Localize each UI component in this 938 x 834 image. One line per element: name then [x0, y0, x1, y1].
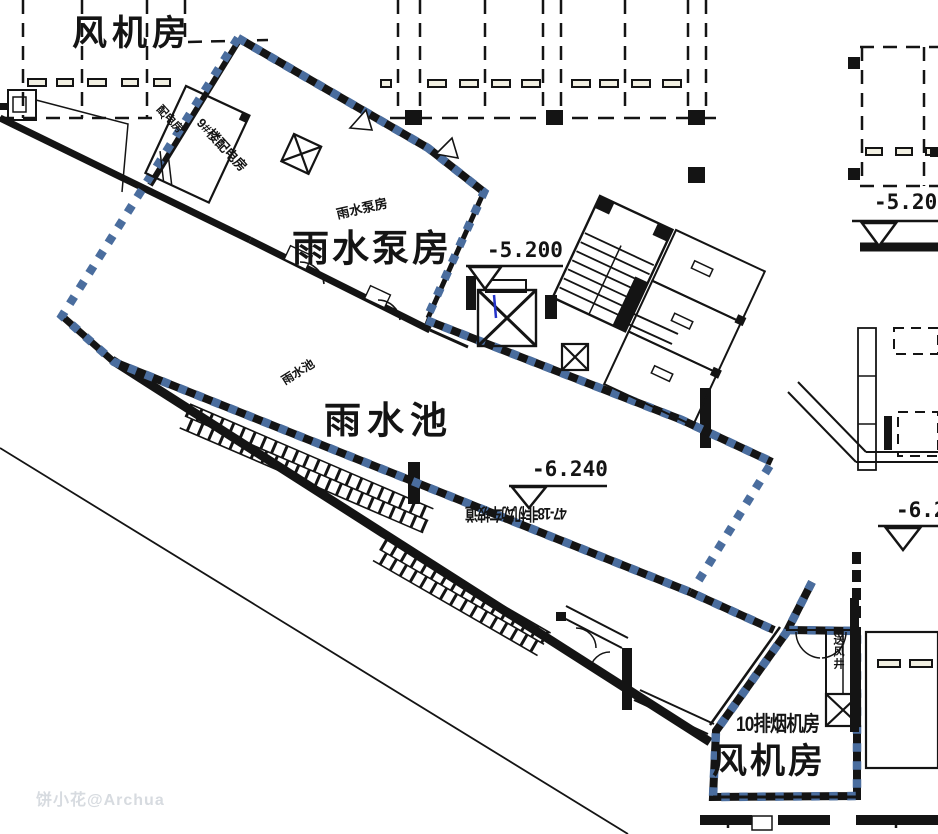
floor-plan-canvas: 风机房 雨水泵房 雨水泵房 雨水池 雨水池 配电房 9#楼配电房 47-18非机…: [0, 0, 938, 834]
elevation-marker-pump: [466, 266, 563, 289]
label-bicycle-ramp: 47-18非机动车坡道: [466, 505, 567, 522]
wheel-stops: [28, 79, 170, 86]
label-fan-room-bottom: 风机房: [712, 744, 826, 779]
staircase-symbol: [553, 196, 673, 331]
elevation-text-pool: -6.240: [532, 459, 608, 480]
watermark: 饼小花@Archua: [36, 786, 165, 810]
elevator-symbol: [466, 276, 557, 346]
parking-stalls-top-right: [848, 47, 938, 186]
elevation-text-pump: -5.200: [487, 240, 563, 261]
elevation-marker-right-mid: [878, 526, 938, 550]
bottom-edge-walls: [700, 812, 938, 834]
elevation-marker-right-top: [852, 221, 938, 247]
label-pump-room: 雨水泵房: [292, 230, 452, 267]
elevation-text-right-mid: -6.2: [896, 500, 938, 521]
shaft-x-symbol-pump: [281, 134, 321, 174]
label-air-supply-shaft: 送风井: [832, 634, 843, 670]
ramp-area: [556, 606, 714, 734]
plan-linework: [0, 0, 938, 834]
label-pool: 雨水池: [324, 402, 453, 439]
wheel-stops: [381, 80, 681, 87]
fire-compartment-boundary: [62, 38, 857, 797]
shaft-x-symbol-middle: [562, 344, 588, 370]
label-fan-room-top: 风机房: [72, 16, 192, 51]
elevation-text-right-top: -5.20: [874, 192, 937, 213]
right-edge-structures: [852, 328, 938, 618]
left-edge-utility-symbol: [0, 90, 128, 192]
blue-pipe-line: [494, 295, 496, 318]
label-smoke-exhaust-room: 10排烟机房: [736, 714, 819, 735]
pool-hatched-band-2: [373, 538, 551, 656]
door-swing-arc: [796, 632, 820, 658]
